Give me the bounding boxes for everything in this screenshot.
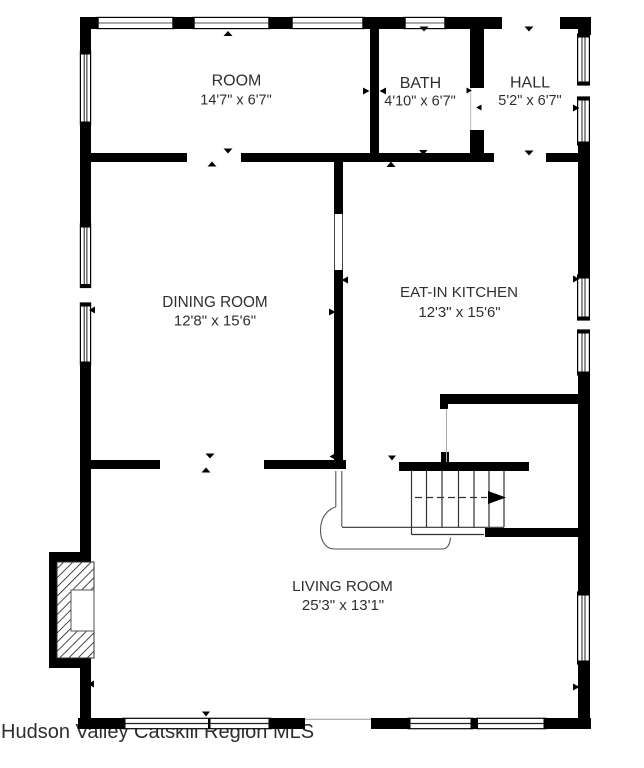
svg-text:12'8" x 15'6": 12'8" x 15'6" [174,313,256,330]
svg-text:5'2" x 6'7": 5'2" x 6'7" [498,93,561,109]
svg-text:12'3" x 15'6": 12'3" x 15'6" [418,304,500,321]
svg-text:ROOM: ROOM [212,72,262,89]
svg-text:14'7" x 6'7": 14'7" x 6'7" [200,92,271,108]
svg-text:LIVING ROOM: LIVING ROOM [292,578,393,595]
svg-text:BATH: BATH [400,75,441,92]
svg-text:4'10" x 6'7": 4'10" x 6'7" [384,94,455,110]
svg-text:EAT-IN KITCHEN: EAT-IN KITCHEN [400,284,518,301]
svg-text:HALL: HALL [510,75,550,92]
svg-text:DINING ROOM: DINING ROOM [162,294,267,311]
svg-text:25'3" x 13'1": 25'3" x 13'1" [302,597,384,614]
